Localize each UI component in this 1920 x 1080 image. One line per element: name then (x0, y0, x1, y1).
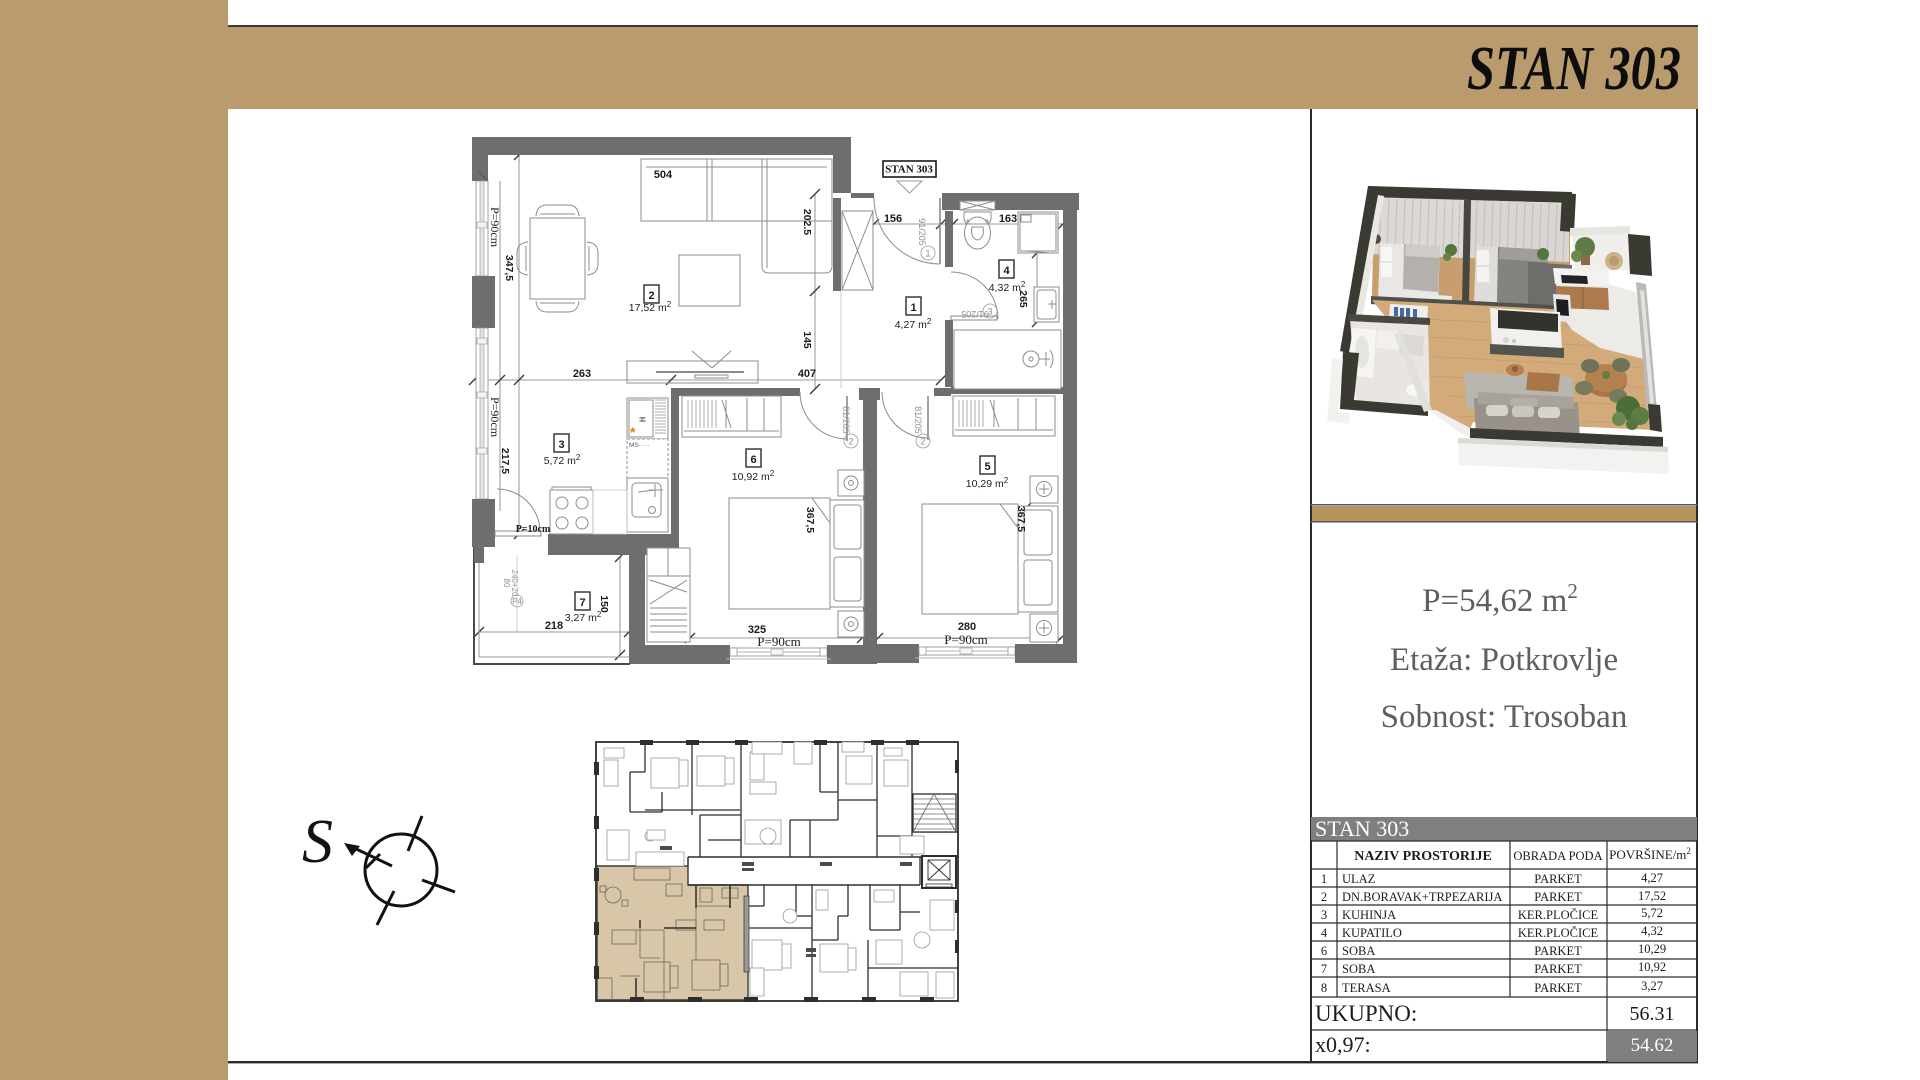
svg-text:218: 218 (545, 620, 563, 632)
svg-text:P=54,62 m2: P=54,62 m2 (1422, 579, 1578, 619)
svg-text:TERASA: TERASA (1342, 981, 1391, 995)
svg-text:81/205: 81/205 (841, 406, 851, 434)
svg-text:S: S (302, 808, 333, 876)
svg-text:7: 7 (579, 597, 585, 609)
svg-text:163: 163 (999, 213, 1017, 225)
svg-text:265: 265 (1017, 290, 1029, 308)
svg-text:4,27 m2: 4,27 m2 (895, 317, 932, 331)
svg-text:P=10cm: P=10cm (516, 524, 551, 535)
svg-text:1: 1 (925, 249, 930, 259)
svg-text:91/205: 91/205 (961, 309, 989, 319)
svg-text:NAZIV PROSTORIJE: NAZIV PROSTORIJE (1354, 849, 1492, 864)
svg-text:263: 263 (573, 368, 591, 380)
svg-text:4,27: 4,27 (1641, 871, 1663, 885)
svg-text:STAN 303: STAN 303 (1315, 816, 1409, 841)
svg-text:10,92: 10,92 (1638, 960, 1666, 974)
svg-text:56.31: 56.31 (1630, 1003, 1675, 1025)
svg-text:*: * (630, 424, 636, 440)
svg-text:2: 2 (848, 437, 853, 447)
svg-text:PARKET: PARKET (1534, 890, 1582, 904)
svg-text:17,52: 17,52 (1638, 889, 1666, 903)
svg-text:1: 1 (1321, 872, 1327, 886)
svg-text:8: 8 (1321, 981, 1327, 995)
svg-text:217,5: 217,5 (499, 448, 511, 474)
svg-text:54.62: 54.62 (1631, 1035, 1674, 1056)
svg-text:3: 3 (558, 439, 564, 451)
svg-text:DN.BORAVAK+TRPEZARIJA: DN.BORAVAK+TRPEZARIJA (1342, 890, 1502, 904)
svg-text:10,29: 10,29 (1638, 942, 1666, 956)
svg-text:6: 6 (750, 454, 756, 466)
svg-text:347,5: 347,5 (503, 255, 515, 281)
svg-text:2: 2 (1321, 890, 1327, 904)
svg-text:3: 3 (987, 307, 992, 317)
svg-text:1: 1 (910, 302, 916, 314)
svg-text:3,27 m2: 3,27 m2 (565, 610, 602, 624)
svg-text:145: 145 (801, 331, 813, 349)
svg-text:P=90cm: P=90cm (488, 397, 502, 438)
svg-text:UKUPNO:: UKUPNO: (1315, 1001, 1417, 1026)
svg-text:4: 4 (1003, 265, 1010, 277)
svg-text:P=90cm: P=90cm (488, 207, 502, 248)
svg-text:504: 504 (654, 169, 673, 181)
svg-text:5: 5 (984, 461, 990, 473)
svg-text:3: 3 (1321, 908, 1327, 922)
svg-text:91/205: 91/205 (917, 218, 927, 246)
svg-text:KER.PLOČICE: KER.PLOČICE (1518, 908, 1599, 922)
svg-text:4,32: 4,32 (1641, 924, 1663, 938)
svg-text:PARKET: PARKET (1534, 872, 1582, 886)
svg-text:STAN 303: STAN 303 (1467, 35, 1681, 103)
svg-text:SOBA: SOBA (1342, 944, 1375, 958)
svg-text:PARKET: PARKET (1534, 981, 1582, 995)
svg-text:KUHINJA: KUHINJA (1342, 908, 1396, 922)
svg-text:Sobnost: Trosoban: Sobnost: Trosoban (1381, 699, 1628, 735)
svg-text:STAN 303: STAN 303 (885, 164, 933, 176)
svg-text:OBRADA PODA: OBRADA PODA (1513, 849, 1602, 863)
svg-text:POVRŠINE/m2: POVRŠINE/m2 (1609, 846, 1691, 862)
svg-text:202.5: 202.5 (801, 209, 813, 235)
svg-text:2: 2 (648, 290, 654, 302)
svg-text:407: 407 (798, 368, 816, 380)
svg-text:KUPATILO: KUPATILO (1342, 926, 1402, 940)
svg-text:367,5: 367,5 (1015, 506, 1027, 532)
svg-text:P=90cm: P=90cm (944, 632, 987, 647)
svg-text:SOBA: SOBA (1342, 962, 1375, 976)
svg-text:PARKET: PARKET (1534, 944, 1582, 958)
svg-text:Etaža: Potkrovlje: Etaža: Potkrovlje (1390, 642, 1618, 678)
svg-text:156: 156 (884, 213, 902, 225)
svg-text:80: 80 (502, 579, 511, 588)
svg-text:81/205: 81/205 (913, 406, 923, 434)
svg-text:5,72 m2: 5,72 m2 (544, 453, 581, 467)
svg-text:7: 7 (1321, 962, 1327, 976)
svg-text:10,92 m2: 10,92 m2 (732, 469, 775, 483)
svg-text:367,5: 367,5 (804, 507, 816, 533)
svg-text:5,72: 5,72 (1641, 906, 1663, 920)
svg-text:17,52 m2: 17,52 m2 (629, 300, 672, 314)
svg-text:4: 4 (1321, 926, 1328, 940)
svg-text:10,29 m2: 10,29 m2 (966, 476, 1009, 490)
svg-text:P=90cm: P=90cm (757, 634, 800, 649)
svg-text:3,27: 3,27 (1641, 979, 1663, 993)
svg-text:KER.PLOČICE: KER.PLOČICE (1518, 926, 1599, 940)
svg-text:H: H (640, 417, 647, 422)
svg-text:ULAZ: ULAZ (1342, 872, 1375, 886)
svg-text:x0,97:: x0,97: (1315, 1032, 1371, 1057)
svg-text:MS·····: MS····· (629, 442, 650, 449)
svg-text:PARKET: PARKET (1534, 962, 1582, 976)
svg-text:6: 6 (1321, 944, 1327, 958)
svg-text:2: 2 (920, 437, 925, 447)
svg-text:150: 150 (598, 595, 610, 613)
